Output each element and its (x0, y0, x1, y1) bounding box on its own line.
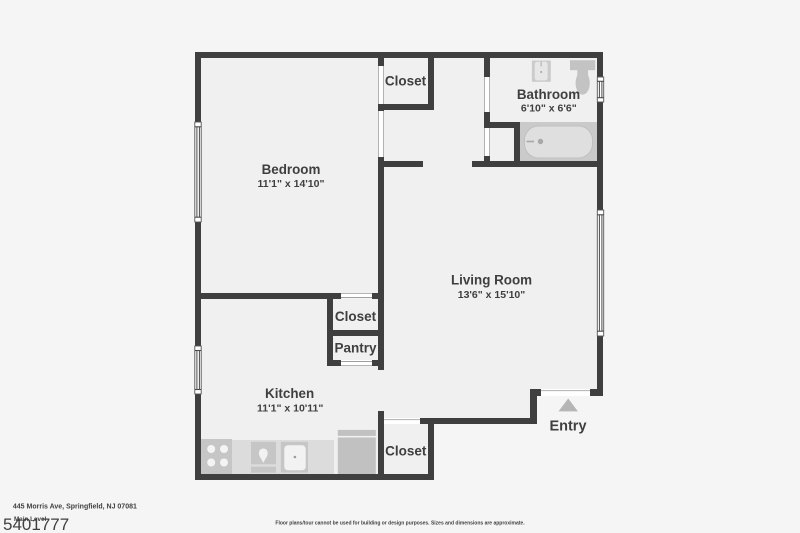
svg-text:Living Room: Living Room (451, 273, 532, 288)
svg-text:Entry: Entry (549, 419, 586, 435)
svg-text:Closet: Closet (385, 443, 427, 458)
svg-text:Kitchen: Kitchen (265, 386, 314, 401)
svg-text:Bathroom: Bathroom (517, 87, 580, 102)
svg-text:5401777: 5401777 (3, 515, 69, 533)
svg-text:6'10" x 6'6": 6'10" x 6'6" (521, 102, 577, 114)
svg-text:Closet: Closet (385, 74, 427, 89)
svg-text:445 Morris Ave, Springfield, N: 445 Morris Ave, Springfield, NJ 07081 (13, 503, 137, 510)
svg-text:Floor plans/tour cannot be use: Floor plans/tour cannot be used for buil… (275, 521, 525, 527)
svg-text:11'1" x 10'11": 11'1" x 10'11" (257, 402, 323, 414)
svg-text:Bedroom: Bedroom (262, 162, 321, 177)
svg-text:Closet: Closet (335, 309, 377, 324)
svg-text:Pantry: Pantry (334, 340, 377, 355)
svg-text:13'6" x 15'10": 13'6" x 15'10" (458, 289, 526, 301)
svg-text:11'1" x 14'10": 11'1" x 14'10" (258, 178, 325, 190)
